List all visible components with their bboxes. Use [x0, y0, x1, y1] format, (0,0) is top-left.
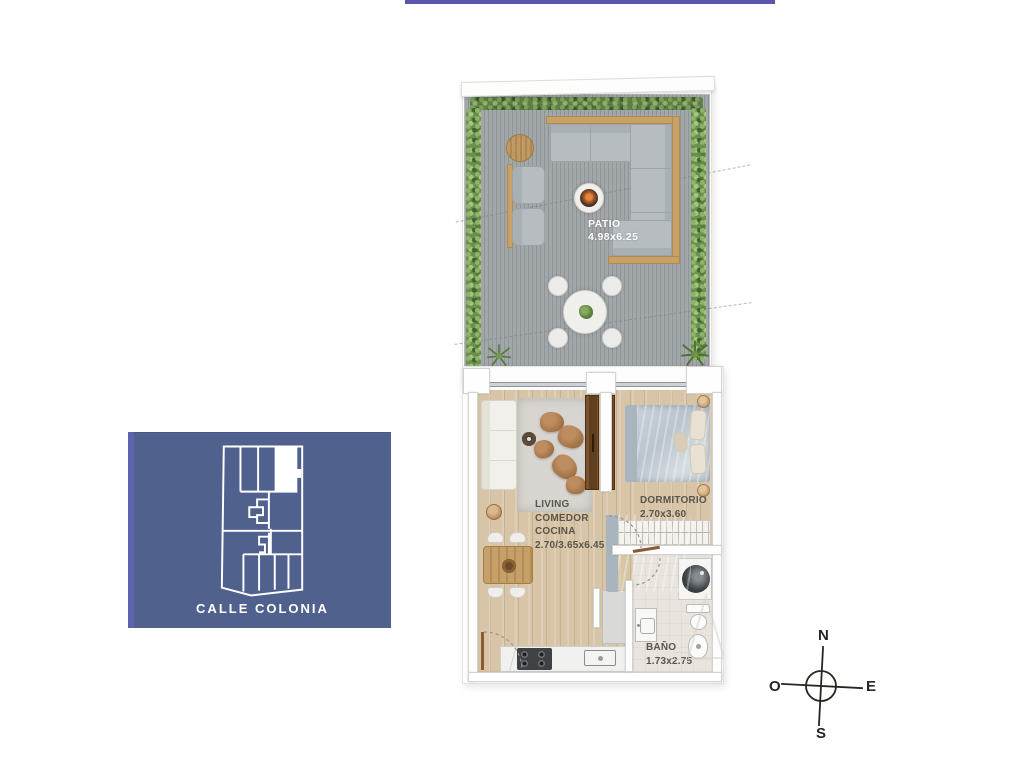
burner: [521, 651, 528, 658]
corner-plant: [680, 338, 710, 368]
tv-cabinet: [585, 395, 599, 490]
hedge-right: [691, 108, 706, 360]
watermark-fragment: [674, 652, 689, 660]
round-coffee-table: [506, 134, 534, 162]
fire-pit-flame: [580, 189, 598, 207]
floor-lamp: [486, 504, 502, 520]
page: PATIO 4.98x6.25: [0, 0, 1024, 768]
fire-pit: [574, 183, 604, 213]
outdoor-chair: [548, 328, 568, 348]
compass-east-label: E: [866, 678, 876, 695]
bedroom-dimensions: 2.70x3.60: [640, 508, 686, 522]
patio-name: PATIO: [588, 218, 621, 231]
location-key-map: CALLE COLONIA: [128, 432, 391, 628]
toilet-tank: [686, 604, 710, 613]
lounge-chair: [512, 166, 545, 204]
compass-rose: N S E O: [768, 624, 878, 740]
patio-glass-door: [616, 382, 686, 387]
toilet: [690, 614, 707, 630]
patio-glass-door: [490, 382, 586, 387]
compass-ew-line: [781, 684, 863, 688]
outdoor-chair: [602, 276, 622, 296]
compass-north-label: N: [818, 627, 829, 644]
bedroom-name: DORMITORIO: [640, 494, 707, 508]
table-plant: [579, 305, 593, 319]
wall-bottom: [468, 672, 722, 682]
wall-bathroom-left: [625, 580, 633, 672]
sofa: [481, 400, 517, 490]
bathroom-name: BAÑO: [646, 641, 676, 655]
wall-pier: [463, 368, 490, 394]
floor-plan: PATIO 4.98x6.25: [462, 80, 724, 688]
pillow: [689, 409, 707, 440]
wall-right: [712, 392, 722, 682]
street-label: CALLE COLONIA: [134, 601, 391, 616]
living-line1: LIVING: [535, 498, 570, 512]
dining-chair: [509, 532, 526, 543]
living-dimensions: 2.70/3.65x6.45: [535, 539, 605, 553]
outdoor-chair: [602, 328, 622, 348]
compass-west-label: O: [769, 678, 781, 695]
wall-pier: [586, 372, 616, 394]
wall-left: [468, 392, 478, 682]
centerpiece: [502, 559, 516, 573]
outdoor-sofa-wood-trim: [608, 256, 680, 264]
patio-dimensions: 4.98x6.25: [588, 231, 638, 244]
wall-bedroom-bathroom: [612, 545, 722, 555]
outdoor-sofa-wood-trim: [546, 116, 680, 124]
building-outline: [214, 442, 312, 600]
dining-chair: [487, 532, 504, 543]
hedge-left: [466, 108, 481, 372]
outdoor-sofa-wood-trim: [672, 116, 680, 264]
top-accent-line: [405, 0, 775, 4]
wall-pier: [686, 366, 722, 394]
kitchen-sink: [584, 650, 616, 666]
outdoor-dining-table: [563, 290, 607, 334]
pillow: [689, 444, 707, 475]
nightstand-lamp: [697, 395, 710, 408]
patio-label: PATIO 4.98x6.25: [528, 218, 648, 231]
living-line2: COMEDOR: [535, 512, 589, 526]
bathroom-sink: [635, 608, 657, 642]
living-line3: COCINA: [535, 525, 576, 539]
cooktop: [517, 648, 552, 670]
hedge-top: [470, 97, 703, 110]
side-table: [522, 432, 536, 446]
entry-door-leaf: [481, 632, 484, 670]
compass-south-label: S: [816, 725, 826, 740]
wall-living-bedroom: [600, 392, 612, 492]
wall-kitchen-stub: [593, 588, 600, 628]
highlighted-unit: [276, 447, 301, 492]
dining-table: [483, 546, 533, 584]
burner: [521, 660, 528, 667]
bedroom-door-leaf: [606, 515, 609, 548]
burner: [538, 660, 545, 667]
pouf: [566, 476, 586, 494]
burner: [538, 651, 545, 658]
outdoor-chair: [548, 276, 568, 296]
corner-plant: [486, 342, 512, 368]
